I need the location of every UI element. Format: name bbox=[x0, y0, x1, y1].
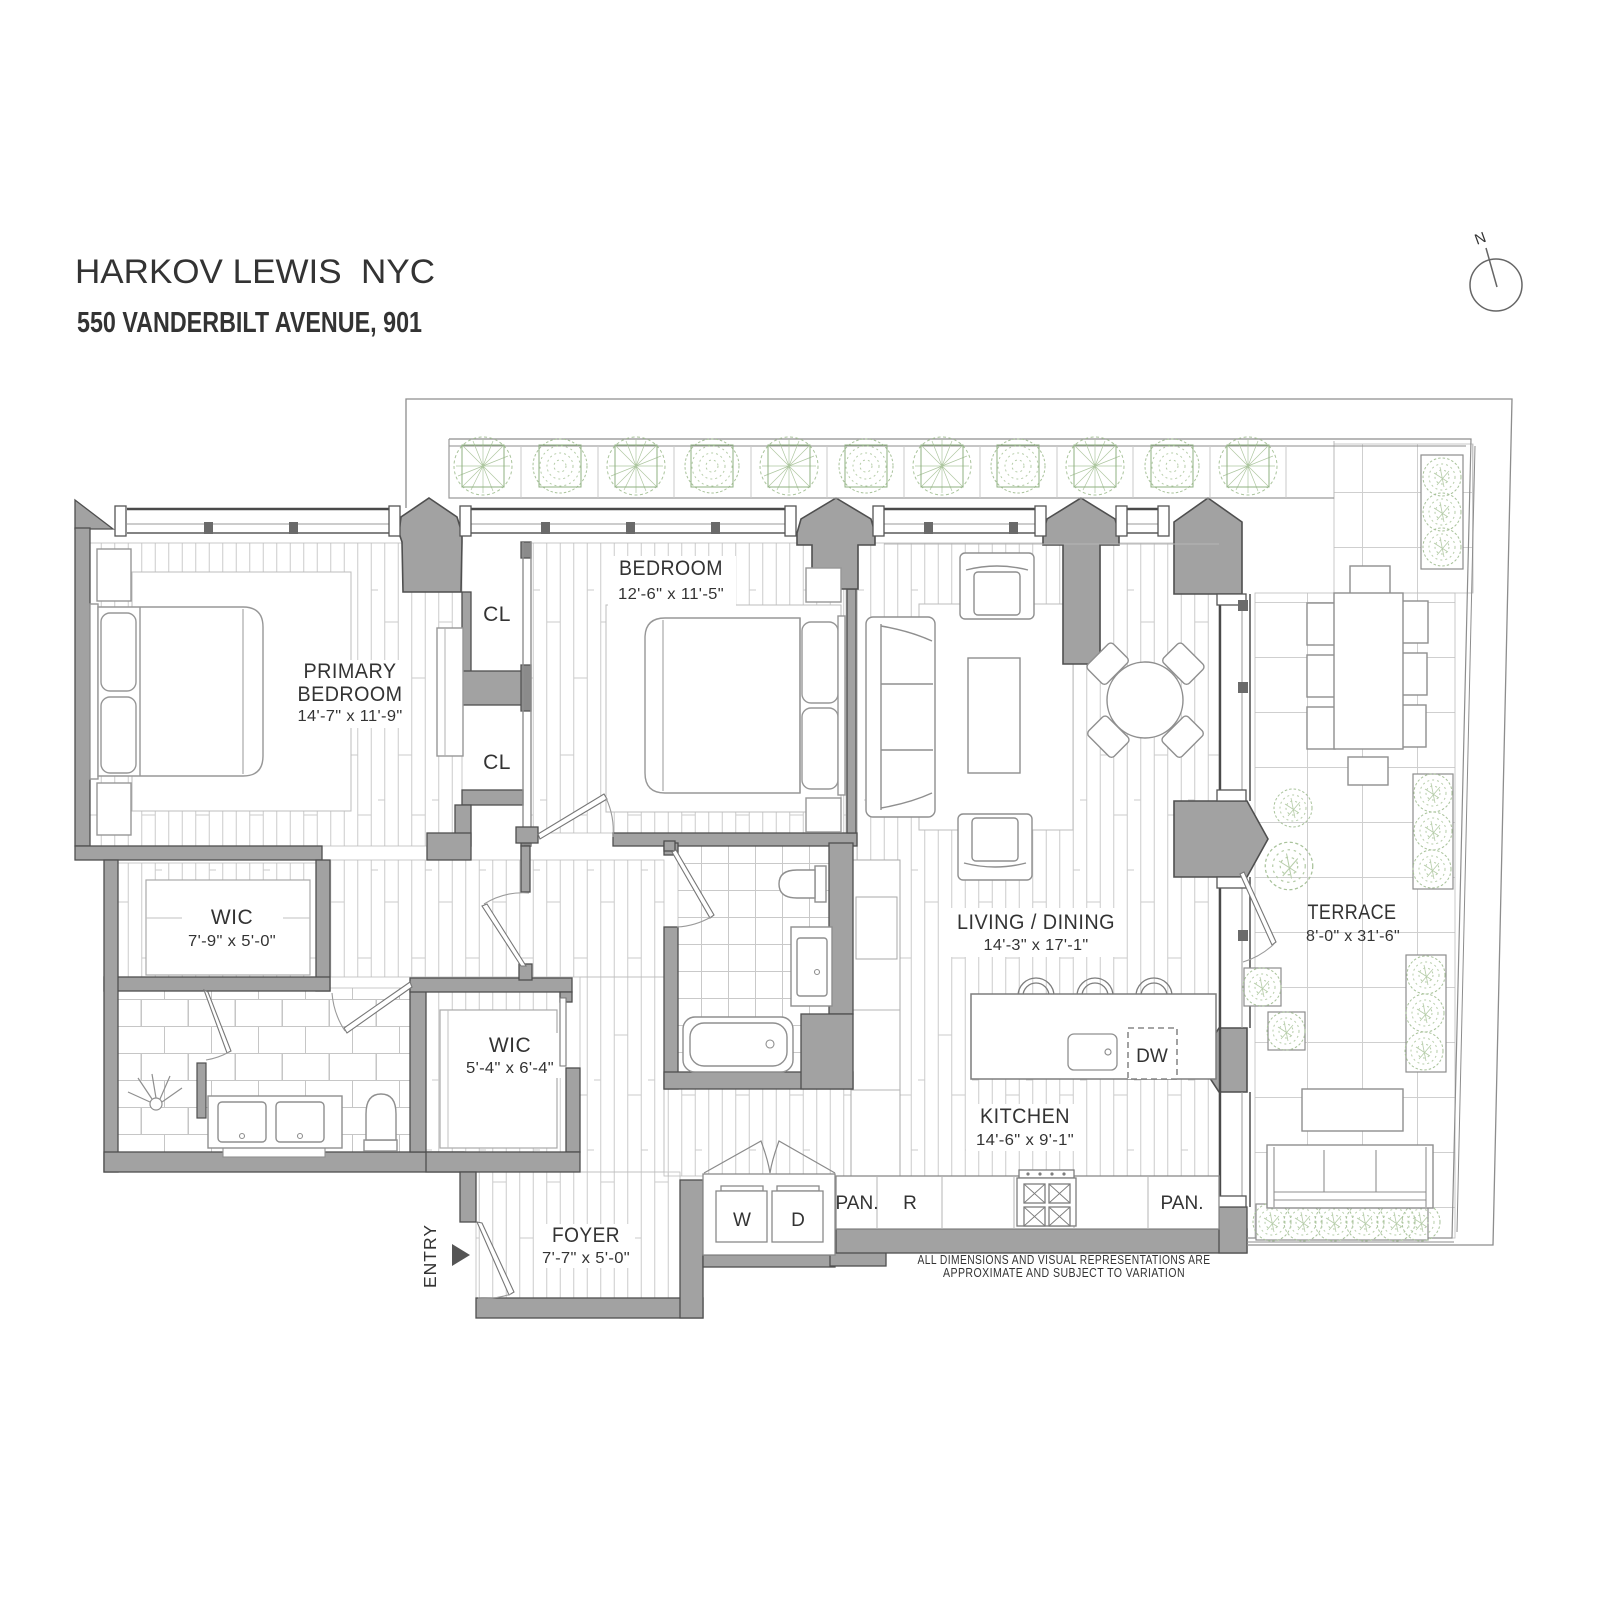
svg-text:W: W bbox=[733, 1210, 751, 1231]
svg-text:550 VANDERBILT AVENUE, 901: 550 VANDERBILT AVENUE, 901 bbox=[77, 307, 422, 339]
svg-text:BEDROOM: BEDROOM bbox=[298, 683, 403, 706]
svg-text:7'-9" x 5'-0": 7'-9" x 5'-0" bbox=[188, 933, 276, 950]
svg-text:DW: DW bbox=[1136, 1046, 1168, 1067]
svg-text:ENTRY: ENTRY bbox=[420, 1224, 440, 1288]
svg-text:FOYER: FOYER bbox=[552, 1224, 620, 1247]
svg-text:WIC: WIC bbox=[489, 1034, 531, 1057]
svg-text:APPROXIMATE AND SUBJECT TO VAR: APPROXIMATE AND SUBJECT TO VARIATION bbox=[943, 1266, 1185, 1280]
svg-text:5'-4" x 6'-4": 5'-4" x 6'-4" bbox=[466, 1060, 554, 1077]
svg-text:CL: CL bbox=[483, 751, 511, 774]
svg-text:ALL DIMENSIONS AND VISUAL REPR: ALL DIMENSIONS AND VISUAL REPRESENTATION… bbox=[918, 1253, 1211, 1267]
svg-text:8'-0" x 31'-6": 8'-0" x 31'-6" bbox=[1306, 928, 1400, 945]
svg-text:BEDROOM: BEDROOM bbox=[619, 557, 723, 580]
svg-text:CL: CL bbox=[483, 603, 511, 626]
svg-text:N: N bbox=[1472, 229, 1488, 249]
svg-text:14'-7" x 11'-9": 14'-7" x 11'-9" bbox=[298, 708, 403, 725]
svg-text:KITCHEN: KITCHEN bbox=[980, 1105, 1070, 1128]
svg-text:PRIMARY: PRIMARY bbox=[304, 660, 397, 683]
svg-text:LIVING / DINING: LIVING / DINING bbox=[957, 911, 1115, 934]
svg-text:R: R bbox=[903, 1193, 917, 1214]
svg-text:14'-3" x 17'-1": 14'-3" x 17'-1" bbox=[984, 937, 1089, 954]
svg-text:D: D bbox=[791, 1210, 805, 1231]
svg-text:12'-6" x 11'-5": 12'-6" x 11'-5" bbox=[618, 586, 724, 603]
svg-text:TERRACE: TERRACE bbox=[1308, 901, 1397, 924]
svg-text:WIC: WIC bbox=[211, 906, 253, 929]
svg-text:PAN.: PAN. bbox=[1161, 1193, 1204, 1214]
svg-text:HARKOV LEWIS NYC: HARKOV LEWIS NYC bbox=[75, 253, 435, 291]
svg-text:PAN.: PAN. bbox=[836, 1193, 879, 1214]
svg-text:7'-7" x 5'-0": 7'-7" x 5'-0" bbox=[542, 1250, 630, 1267]
svg-text:14'-6" x 9'-1": 14'-6" x 9'-1" bbox=[976, 1132, 1074, 1149]
